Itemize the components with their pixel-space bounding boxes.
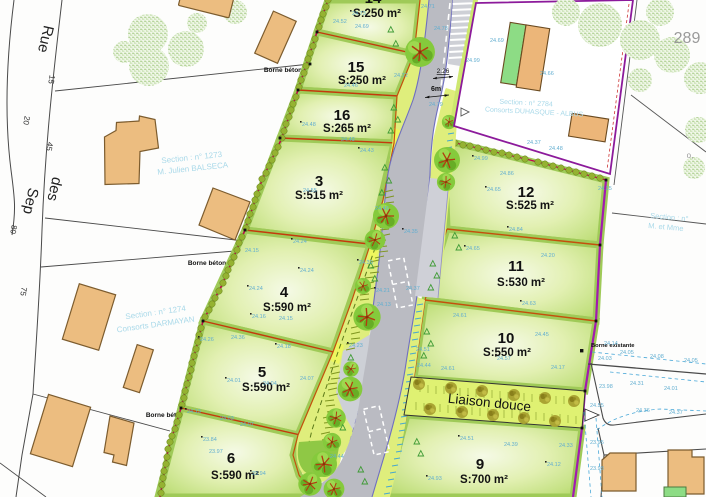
svg-text:24.99: 24.99 — [474, 156, 488, 162]
svg-text:4: 4 — [280, 284, 289, 301]
svg-text:24.66: 24.66 — [540, 71, 554, 77]
svg-text:24.52: 24.52 — [333, 19, 347, 25]
svg-text:10: 10 — [498, 330, 515, 347]
svg-text:24.37: 24.37 — [669, 410, 683, 416]
svg-text:24.69: 24.69 — [355, 24, 369, 30]
svg-text:Borne béton: Borne béton — [188, 260, 226, 267]
svg-text:24.37: 24.37 — [527, 140, 541, 146]
svg-text:15: 15 — [348, 59, 365, 76]
svg-text:S:700 m²: S:700 m² — [460, 474, 508, 486]
svg-text:11: 11 — [508, 258, 524, 275]
svg-text:24.26: 24.26 — [200, 337, 214, 343]
svg-text:24.55: 24.55 — [590, 403, 604, 409]
svg-text:24.33: 24.33 — [559, 443, 573, 449]
svg-text:16: 16 — [334, 107, 351, 124]
svg-text:24.16: 24.16 — [252, 314, 266, 320]
svg-text:Borne béton: Borne béton — [264, 67, 302, 74]
svg-text:24.51: 24.51 — [416, 347, 430, 353]
svg-text:24.61: 24.61 — [453, 313, 467, 319]
svg-text:24.15: 24.15 — [279, 316, 293, 322]
svg-text:6m: 6m — [431, 86, 441, 93]
svg-text:24.45: 24.45 — [535, 332, 549, 338]
svg-text:24.44: 24.44 — [330, 454, 344, 460]
svg-text:24.35: 24.35 — [404, 229, 418, 235]
svg-text:24.46: 24.46 — [375, 206, 389, 212]
svg-text:24.05: 24.05 — [684, 358, 698, 364]
svg-text:S:525 m²: S:525 m² — [506, 200, 554, 212]
svg-text:24.13: 24.13 — [187, 409, 201, 415]
svg-text:24.43: 24.43 — [360, 148, 374, 154]
svg-text:24.84: 24.84 — [509, 227, 523, 233]
svg-text:24.08: 24.08 — [650, 354, 664, 360]
svg-text:24.23: 24.23 — [349, 343, 363, 349]
svg-text:23.98: 23.98 — [590, 466, 604, 472]
svg-text:24.71: 24.71 — [421, 4, 435, 10]
svg-text:S:265 m²: S:265 m² — [323, 123, 371, 135]
svg-text:2.26: 2.26 — [437, 68, 450, 75]
svg-text:12: 12 — [518, 184, 535, 201]
svg-text:24.01: 24.01 — [227, 378, 241, 384]
svg-text:289: 289 — [674, 30, 701, 47]
svg-text:24.12: 24.12 — [547, 462, 561, 468]
svg-text:24.07: 24.07 — [300, 376, 314, 382]
svg-text:23.97: 23.97 — [209, 449, 223, 455]
svg-text:24.15: 24.15 — [598, 186, 612, 192]
svg-text:23.84: 23.84 — [203, 437, 217, 443]
svg-text:24.46: 24.46 — [344, 83, 358, 89]
svg-text:24.61: 24.61 — [441, 366, 455, 372]
svg-text:24.18: 24.18 — [277, 344, 291, 350]
svg-text:24.69: 24.69 — [490, 38, 504, 44]
svg-text:24.78: 24.78 — [434, 26, 448, 32]
svg-text:24.48: 24.48 — [302, 122, 316, 128]
svg-text:24.48: 24.48 — [549, 146, 563, 152]
svg-text:24.55: 24.55 — [303, 188, 317, 194]
svg-text:24.03: 24.03 — [220, 416, 234, 422]
svg-text:24.51: 24.51 — [460, 436, 474, 442]
svg-text:24.63: 24.63 — [522, 301, 536, 307]
svg-text:24.44: 24.44 — [417, 363, 431, 369]
svg-text:23.94: 23.94 — [252, 471, 266, 477]
svg-text:24.39: 24.39 — [504, 442, 518, 448]
svg-text:24.24: 24.24 — [249, 286, 263, 292]
svg-text:24.36: 24.36 — [231, 335, 245, 341]
svg-text:24.99: 24.99 — [466, 58, 480, 64]
svg-text:24.20: 24.20 — [541, 253, 555, 259]
svg-text:24.17: 24.17 — [551, 365, 565, 371]
svg-text:S:530 m²: S:530 m² — [497, 277, 545, 289]
svg-text:5: 5 — [258, 364, 266, 381]
svg-text:24.05: 24.05 — [620, 350, 634, 356]
svg-text:24.30: 24.30 — [359, 260, 373, 266]
svg-text:24.37: 24.37 — [406, 286, 420, 292]
svg-text:24.86: 24.86 — [500, 171, 514, 177]
svg-text:24.79: 24.79 — [429, 102, 443, 108]
svg-text:24.13: 24.13 — [377, 302, 391, 308]
svg-text:24.48: 24.48 — [341, 137, 355, 143]
svg-text:24.03: 24.03 — [598, 356, 612, 362]
svg-text:23.98: 23.98 — [599, 384, 613, 390]
svg-text:24.04: 24.04 — [263, 381, 277, 387]
svg-text:24.01: 24.01 — [664, 386, 678, 392]
svg-text:24.07: 24.07 — [240, 422, 254, 428]
svg-text:24.93: 24.93 — [428, 476, 442, 482]
svg-text:24.65: 24.65 — [487, 187, 501, 193]
svg-text:24.14: 24.14 — [604, 341, 618, 347]
svg-text:24.24: 24.24 — [293, 239, 307, 245]
svg-text:9: 9 — [476, 456, 484, 473]
svg-text:24.15: 24.15 — [245, 248, 259, 254]
svg-text:6: 6 — [227, 450, 235, 467]
svg-text:S:590 m²: S:590 m² — [263, 302, 311, 314]
svg-text:24.36: 24.36 — [636, 408, 650, 414]
svg-text:24.21: 24.21 — [376, 288, 390, 294]
svg-text:24.65: 24.65 — [466, 246, 480, 252]
svg-text:24.31: 24.31 — [630, 381, 644, 387]
svg-text:14: 14 — [365, 0, 382, 7]
svg-text:23.95: 23.95 — [590, 440, 604, 446]
svg-text:24.24: 24.24 — [300, 268, 314, 274]
svg-text:24.57: 24.57 — [497, 356, 511, 362]
svg-text:24.72: 24.72 — [394, 73, 408, 79]
svg-text:o,: o, — [687, 151, 694, 160]
svg-text:24.73: 24.73 — [352, 11, 366, 17]
